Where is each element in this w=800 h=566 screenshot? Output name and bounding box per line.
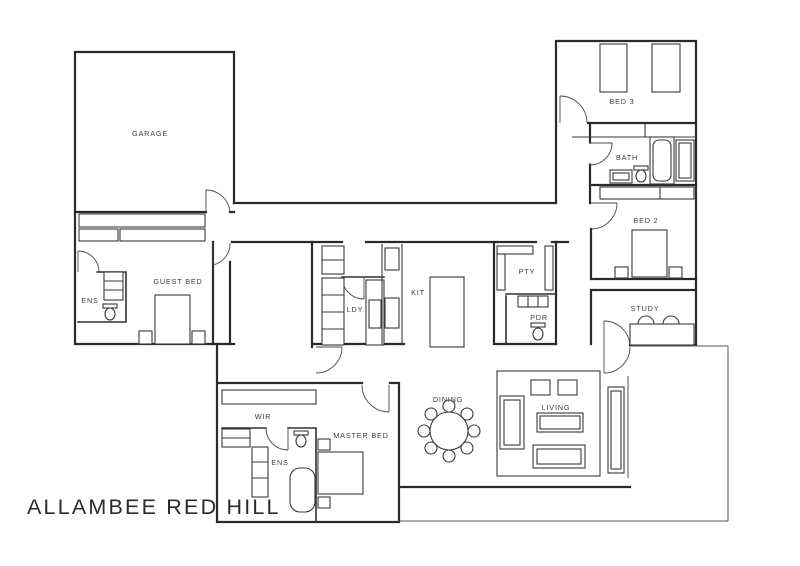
- label-dining: DINING: [433, 395, 463, 404]
- guest-bed-furniture: [139, 295, 205, 344]
- study-furniture: [630, 316, 694, 345]
- label-living: LIVING: [542, 403, 571, 412]
- kitchen-island: [430, 277, 464, 347]
- master-ens-fixtures: [290, 431, 315, 512]
- label-bed2: BED 2: [633, 216, 658, 225]
- plan-title: ALLAMBEE RED HILL: [27, 495, 281, 519]
- label-wir: WIR: [255, 412, 272, 421]
- label-master-bed: MASTER BED: [333, 431, 388, 440]
- label-master-ens: ENS: [271, 458, 288, 467]
- label-pantry: PTY: [519, 267, 536, 276]
- guest-ens-fixtures: [103, 272, 123, 320]
- dining-furniture: [418, 400, 480, 462]
- label-guest-ens: ENS: [81, 296, 98, 305]
- dining-table: [430, 412, 468, 450]
- living-furniture: [497, 371, 624, 476]
- master-bed-furniture: [318, 439, 363, 508]
- label-garage: GARAGE: [132, 129, 168, 138]
- label-laundry: LDY: [347, 305, 364, 314]
- garage-storage: [79, 214, 205, 241]
- label-bath: BATH: [616, 153, 638, 162]
- label-kitchen: KIT: [411, 288, 425, 297]
- label-study: STUDY: [631, 304, 660, 313]
- label-guest-bed: GUEST BED: [153, 277, 202, 286]
- sliding-door: [608, 387, 624, 473]
- floor-plan-canvas: GARAGE GUEST BED ENS LDY KIT PTY PDR BED…: [0, 0, 800, 566]
- bathtub: [290, 468, 315, 512]
- laundry-fixtures: [322, 246, 384, 345]
- label-powder: PDR: [530, 313, 548, 322]
- bed2-furniture: [600, 187, 694, 278]
- door-swings: [78, 96, 630, 450]
- label-bed3: BED 3: [609, 97, 634, 106]
- floor-plan-page: GARAGE GUEST BED ENS LDY KIT PTY PDR BED…: [0, 0, 800, 566]
